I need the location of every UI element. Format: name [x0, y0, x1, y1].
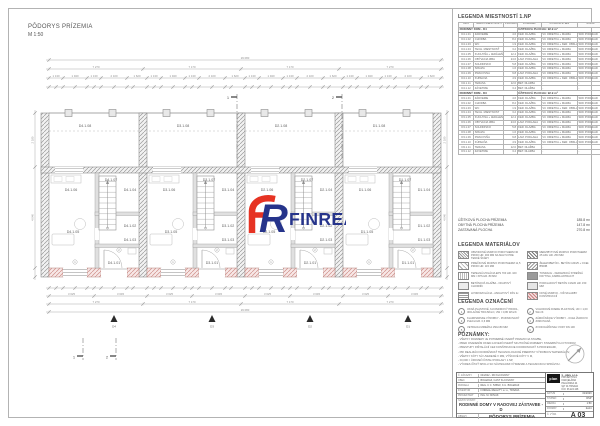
svg-text:1 130: 1 130 — [249, 74, 256, 78]
legend-panel: LEGENDA MIESTNOSTÍ 1.NP OZN.NÁZOV MIESTN… — [456, 8, 592, 416]
title-block-right: plan š - plan, s.r.o. PROJEKTOVÁ KANCELÁ… — [546, 373, 593, 417]
svg-text:1 130: 1 130 — [347, 74, 354, 78]
symbol-number-icon: 2 — [527, 308, 534, 315]
svg-text:D3: D3 — [210, 325, 214, 329]
material-swatch — [527, 282, 538, 290]
room-label: D3.1.02 — [222, 224, 235, 228]
materials-legend-title: LEGENDA MATERIÁLOV — [458, 242, 590, 248]
symbol-number-icon: 3 — [458, 317, 465, 324]
svg-text:2 180: 2 180 — [443, 136, 447, 143]
room-label: D3.1.03 — [222, 238, 235, 242]
room-label: D4.1.03 — [124, 238, 137, 242]
symbol-text: VETRACIA MRIEŽKA 150x150 MM — [467, 326, 508, 329]
room-label: D4.1.08 — [79, 124, 92, 128]
summary-value: 270.8 m² — [577, 228, 590, 233]
room-label: D2.1.06 — [261, 188, 274, 192]
svg-text:3 625: 3 625 — [264, 292, 271, 296]
material-swatch — [458, 282, 469, 290]
svg-text:4 040: 4 040 — [443, 214, 447, 221]
finreal-logo: R FINREAL — [246, 194, 346, 236]
svg-text:3 625: 3 625 — [68, 292, 75, 296]
material-swatch — [458, 262, 469, 270]
svg-text:2 180: 2 180 — [31, 136, 35, 143]
svg-text:3 645: 3 645 — [313, 292, 320, 296]
drawing-content-value: PÔDORYS PRÍZEMIA — [479, 414, 545, 419]
summary-label: ZASTAVANÁ PLOCHA — [458, 228, 492, 233]
svg-text:1 130: 1 130 — [91, 74, 98, 78]
drawing-title-line1: PÔDORYS PRÍZEMIA — [28, 24, 93, 32]
svg-text:1 130: 1 130 — [287, 74, 294, 78]
svg-text:1 130: 1 130 — [385, 74, 392, 78]
room-label: D1.1.06 — [359, 188, 372, 192]
meta-label: MIERKA — [546, 403, 564, 405]
symbol-legend-item: 2VCHODOVÉ DVERE PLASTOVÉ, UD = 1,00 W/m²… — [527, 308, 591, 315]
room-label: D2.1.01 — [304, 261, 317, 265]
material-text: BETÓNOVÁ DLAŽBA - OKAPOVÝ CHODNÍK — [471, 282, 522, 288]
svg-text:7 170: 7 170 — [287, 300, 294, 304]
material-legend-item: BETÓNOVÁ DLAŽBA - OKAPOVÝ CHODNÍK — [458, 282, 522, 290]
svg-text:1 130: 1 130 — [53, 74, 60, 78]
symbol-number-icon: 4 — [527, 317, 534, 324]
svg-text:3 645: 3 645 — [117, 292, 124, 296]
svg-text:1 130: 1 130 — [189, 74, 196, 78]
svg-text:2 100: 2 100 — [111, 74, 118, 78]
svg-text:7 170: 7 170 — [287, 65, 294, 69]
note-line: - VÝKRES ČÍTAŤ SPOLU SO SÚVISIACIMI VÝKR… — [458, 363, 570, 367]
materials-legend: LEGENDA MATERIÁLOV OBVODOVÉ MURIVO POROT… — [458, 242, 590, 300]
material-legend-item: TEPELNÁ IZOLÁCIA EPS 70F HR. 100 MM / XP… — [458, 272, 522, 280]
material-legend-item: TONDACH - KERAMICKÁ STREŠNÁ KRYTINA, FAR… — [527, 272, 591, 280]
room-label: D4.1.04 — [124, 188, 137, 192]
svg-text:29 080: 29 080 — [241, 56, 250, 60]
svg-text:1 940: 1 940 — [366, 74, 373, 78]
info-value: REG. C Č. 5358/2, K.Ú. BOLERÁZ — [479, 384, 545, 387]
symbol-legend-item: 4ZÁMOČNÍCKE VÝROBKY - OCEĽ ŽIAROVO ZINKO… — [527, 317, 591, 324]
svg-text:3 625: 3 625 — [362, 292, 369, 296]
room-label: D4.1.06 — [65, 188, 78, 192]
svg-text:7 270: 7 270 — [93, 300, 100, 304]
meta-value: 1:50 — [564, 402, 593, 405]
info-label: PARCELA — [457, 384, 479, 387]
symbol-text: ZÁMOČNÍCKE VÝROBKY - OCEĽ ŽIAROVO ZINKOV… — [536, 317, 591, 323]
material-text: TEPELNÁ IZOLÁCIA EPS 70F HR. 100 MM / XP… — [471, 272, 522, 278]
drawing-content-cell: OBSAH: PÔDORYS PRÍZEMIA — [457, 414, 545, 419]
room-label: D1.1.03 — [418, 238, 431, 242]
symbol-legend-item: 3KLAMPIARSKE VÝROBKY - POZINKOVANÝ PLECH… — [458, 317, 522, 324]
material-text: TONDACH - KERAMICKÁ STREŠNÁ KRYTINA, FAR… — [540, 272, 591, 278]
room-label: D4.1.05 — [67, 230, 80, 234]
svg-text:1 620: 1 620 — [232, 74, 239, 78]
info-value: FINREAL REALITY s.r.o., TRNAVA — [479, 389, 545, 392]
title-block-left: Č. ZÁKAZKY04/2022 - RD KLČOVANYOBECBOLER… — [457, 373, 546, 417]
svg-text:1 620: 1 620 — [330, 74, 337, 78]
material-text: ŽELEZOBETÓN - BETÓN C20/25 + OCEĽ B500B — [540, 262, 591, 268]
svg-text:4 040: 4 040 — [31, 214, 35, 221]
company-logo-mark: plan — [547, 374, 560, 383]
room-legend-title: LEGENDA MIESTNOSTÍ 1.NP — [458, 14, 531, 20]
info-label: OBEC — [457, 379, 479, 382]
room-label: D2.1.08 — [275, 124, 288, 128]
svg-text:7 270: 7 270 — [93, 65, 100, 69]
room-legend-row: D3.1.12ZÁVETRIE3.4BET. DLAŽBA-- — [459, 150, 600, 155]
material-text: MEDZIBYTOVÉ MURIVO POROTHERM 25 AKU HR. … — [540, 251, 591, 257]
symbols-legend-title: LEGENDA OZNAČENÍ — [458, 299, 590, 305]
svg-text:1 940: 1 940 — [72, 74, 79, 78]
project-name-cell: NÁZOV STAVBY: RODINNÉ DOMY V RADOVEJ ZÁS… — [457, 399, 545, 414]
svg-text:1: 1 — [227, 95, 230, 100]
info-value: ING. M. NOVÁK — [479, 394, 545, 397]
room-label: D4.1.02 — [124, 224, 137, 228]
svg-text:1: 1 — [73, 355, 76, 360]
symbol-text: KLAMPIARSKE VÝROBKY - POZINKOVANÝ PLECH … — [467, 317, 522, 323]
svg-text:3 625: 3 625 — [166, 292, 173, 296]
material-legend-item: OBVODOVÉ MURIVO POROTHERM 30 PROFI HR. 3… — [458, 251, 522, 260]
svg-text:3 645: 3 645 — [215, 292, 222, 296]
symbol-text: VCHODOVÉ DVERE PLASTOVÉ, UD = 1,00 W/m²K — [536, 308, 591, 314]
svg-text:7 170: 7 170 — [189, 65, 196, 69]
material-text: PRIEČKOVÉ MURIVO POROTHERM 11,5 PROFI HR… — [471, 262, 522, 268]
meta-value: DSP — [564, 397, 593, 400]
room-label: D3.1.08 — [177, 124, 190, 128]
material-swatch — [527, 272, 538, 280]
material-swatch — [458, 251, 469, 259]
drawing-sheet: 12D4.1.08D4.1.07D4.1.06D4.1.04D4.1.05D4.… — [0, 0, 600, 426]
info-label: Č. ZÁKAZKY — [457, 374, 479, 377]
drawing-content-label: OBSAH: — [457, 414, 479, 419]
info-label: INVESTOR — [457, 389, 479, 392]
room-label: D1.1.08 — [373, 124, 386, 128]
room-label: D4.1.07 — [105, 178, 118, 182]
note-line: - PRESTUPY INŠTALÁCIÍ CEZ KONŠTRUKCIE KO… — [458, 346, 570, 350]
logo-wordmark: FINREAL — [289, 209, 346, 229]
svg-text:D1: D1 — [406, 325, 410, 329]
project-name: RODINNÉ DOMY V RADOVEJ ZÁSTAVBE - D — [458, 402, 544, 412]
room-label: D1.1.01 — [402, 261, 415, 265]
svg-text:7 170: 7 170 — [189, 300, 196, 304]
room-label: D1.1.07 — [399, 178, 412, 182]
svg-text:2: 2 — [106, 355, 109, 360]
material-legend-item: ŽELEZOBETÓN - BETÓN C20/25 + OCEĽ B500B — [527, 262, 591, 270]
symbol-text: OKNÁ PLASTOVÉ, 6-KOMOROVÝ PROFIL, IZOLAČ… — [467, 308, 522, 314]
svg-text:2 100: 2 100 — [307, 74, 314, 78]
symbols-legend: LEGENDA OZNAČENÍ 1OKNÁ PLASTOVÉ, 6-KOMOR… — [458, 299, 590, 333]
title-block: Č. ZÁKAZKY04/2022 - RD KLČOVANYOBECBOLER… — [456, 372, 594, 418]
info-value: BOLERÁZ, ČASŤ KLČOVANY — [479, 379, 545, 382]
meta-label: FORMÁT — [546, 408, 564, 410]
svg-text:1 940: 1 940 — [170, 74, 177, 78]
material-swatch — [527, 262, 538, 270]
svg-text:7 270: 7 270 — [387, 65, 394, 69]
svg-text:29 080: 29 080 — [241, 308, 250, 312]
north-arrow-icon — [563, 342, 587, 366]
symbol-number-icon: 1 — [458, 308, 465, 315]
svg-text:1 620: 1 620 — [428, 74, 435, 78]
svg-text:2 100: 2 100 — [405, 74, 412, 78]
room-label: D3.1.04 — [222, 188, 235, 192]
room-label: D2.1.07 — [301, 178, 314, 182]
room-label: D3.1.01 — [206, 261, 219, 265]
room-label: D1.1.02 — [418, 224, 431, 228]
meta-label: STUPEŇ — [546, 398, 564, 400]
room-label: D1.1.04 — [418, 188, 431, 192]
info-value: 04/2022 - RD KLČOVANY — [479, 374, 545, 377]
svg-text:7 270: 7 270 — [387, 300, 394, 304]
symbol-text: ZVOD DAŽĎOVEJ VODY DN 100 — [536, 326, 575, 329]
drawing-number-label: Č. VÝKR. — [546, 414, 563, 416]
drawing-number: A 03 — [563, 412, 593, 419]
material-text: PODKLADOVÝ BETÓN C16/20 HR. 150 MM — [540, 282, 591, 288]
material-text: OBVODOVÉ MURIVO POROTHERM 30 PROFI HR. 3… — [471, 251, 522, 260]
drawing-scale: M 1:50 — [28, 32, 93, 38]
material-swatch — [527, 251, 538, 259]
material-text: NOVÉ MURIVO - VIĎ SKLADBY KONŠTRUKCIÍ — [540, 292, 591, 298]
info-label: PROJEKTANT — [457, 394, 479, 397]
company-stamp-text: š - plan, s.r.o. PROJEKTOVÁ KANCELÁRIAPA… — [561, 374, 592, 392]
room-label: D3.1.05 — [165, 230, 178, 234]
material-swatch — [458, 272, 469, 280]
svg-text:2: 2 — [332, 95, 335, 100]
logo-r-monogram: R — [259, 197, 288, 236]
plan-geometry: 12D4.1.08D4.1.07D4.1.06D4.1.04D4.1.05D4.… — [31, 56, 449, 360]
svg-text:2 100: 2 100 — [209, 74, 216, 78]
material-legend-item: PRIEČKOVÉ MURIVO POROTHERM 11,5 PROFI HR… — [458, 262, 522, 270]
material-text: HYDROIZOLÁCIA - ASFALTOVÝ PÁS 2x — [471, 292, 518, 295]
drawing-number-cell: Č. VÝKR. A 03 — [546, 412, 593, 419]
material-legend-item: MEDZIBYTOVÉ MURIVO POROTHERM 25 AKU HR. … — [527, 251, 591, 260]
company-stamp: plan š - plan, s.r.o. PROJEKTOVÁ KANCELÁ… — [546, 373, 593, 392]
svg-text:3 645: 3 645 — [411, 292, 418, 296]
room-label: D4.1.01 — [108, 261, 121, 265]
room-label: D2.1.04 — [320, 188, 333, 192]
area-summary: ÚŽITKOVÁ PLOCHA PRÍZEMIA185.8 m²OBYTNÁ P… — [458, 218, 590, 233]
room-legend-table: OZN.NÁZOV MIESTNOSTIPLOCHA m²PODLAHAPOVR… — [458, 22, 600, 155]
drawing-title: PÔDORYS PRÍZEMIA M 1:50 — [28, 24, 93, 38]
meta-label: DÁTUM — [546, 393, 564, 395]
room-label: D2.1.03 — [320, 238, 333, 242]
svg-text:D4: D4 — [112, 325, 116, 329]
svg-text:1 620: 1 620 — [134, 74, 141, 78]
meta-value: 2xA4 — [564, 407, 593, 410]
room-label: D1.1.05 — [361, 230, 374, 234]
material-legend-item: PODKLADOVÝ BETÓN C16/20 HR. 150 MM — [527, 282, 591, 290]
symbol-legend-item: 1OKNÁ PLASTOVÉ, 6-KOMOROVÝ PROFIL, IZOLA… — [458, 308, 522, 315]
summary-row: ZASTAVANÁ PLOCHA270.8 m² — [458, 228, 590, 233]
svg-text:1 130: 1 130 — [151, 74, 158, 78]
room-label: D3.1.07 — [203, 178, 216, 182]
svg-text:D2: D2 — [308, 325, 312, 329]
room-label: D3.1.06 — [163, 188, 176, 192]
notes-block: POZNÁMKY: - VŠETKY ROZMERY JE POTREBNÉ O… — [458, 332, 570, 367]
svg-text:1 940: 1 940 — [268, 74, 275, 78]
meta-value: 01/2023 — [564, 392, 593, 395]
